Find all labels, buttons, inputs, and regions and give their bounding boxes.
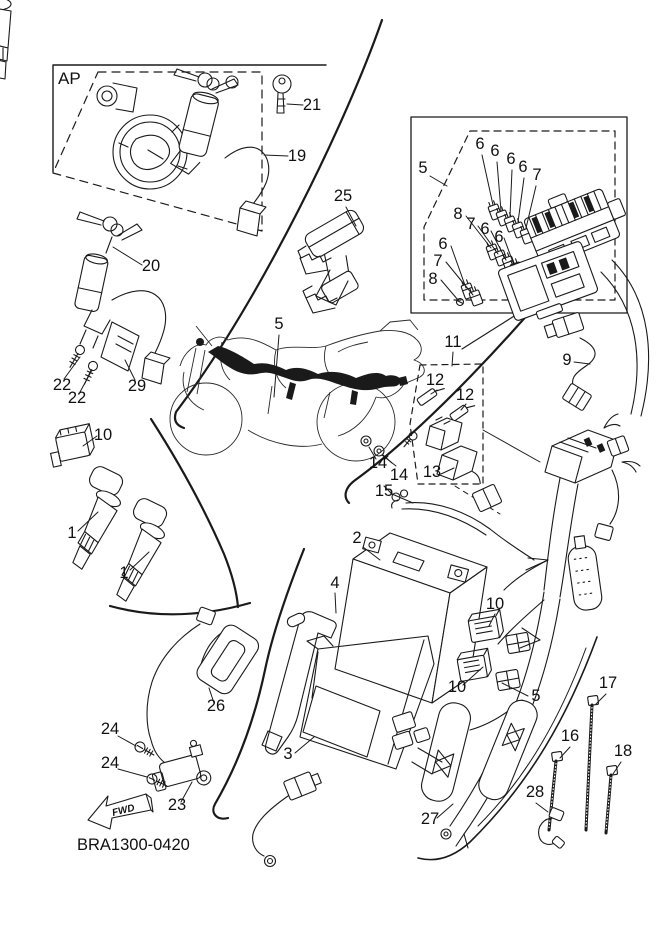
callout-8b: 8: [428, 270, 437, 288]
callout-23: 23: [168, 796, 186, 814]
electrical-parts-diagram: FWD: [0, 0, 661, 935]
callout-22b: 22: [68, 389, 86, 407]
callout-5-fuse: 5: [418, 159, 427, 177]
seat-lock-cylinder: [97, 86, 117, 106]
callout-12a: 12: [426, 371, 444, 389]
bracket-plate-29: [101, 322, 139, 371]
key-21: [273, 75, 291, 113]
screw-24a: [133, 740, 156, 759]
callout-4: 4: [330, 574, 339, 592]
relay-13-body: [437, 446, 477, 480]
callout-18: 18: [614, 742, 632, 760]
relay-assembly-25: [294, 208, 389, 313]
callout-6b: 6: [490, 142, 499, 160]
ap-region-tag: AP: [58, 69, 81, 88]
callout-1a: 1: [67, 524, 76, 542]
callout-24b: 24: [101, 754, 119, 772]
callout-21: 21: [303, 96, 321, 114]
callout-6e: 6: [480, 220, 489, 238]
cable-ties: [539, 695, 618, 849]
screw-22a: [66, 344, 86, 370]
main-switch-20-group: [66, 212, 170, 386]
fuse-pointer-line: [462, 313, 519, 349]
callout-7c: 7: [433, 252, 442, 270]
callout-7b: 7: [466, 215, 475, 233]
callout-14a: 14: [369, 454, 387, 472]
parts-diagram-page: FWD: [0, 0, 661, 935]
switch-20-connector: [142, 352, 170, 384]
callout-24a: 24: [101, 720, 119, 738]
section-frames: [53, 20, 627, 860]
callout-10b: 10: [486, 595, 504, 613]
callout-20: 20: [142, 257, 160, 275]
ap-dashed-box: [53, 72, 262, 231]
motorcycle-silhouette: [170, 320, 424, 461]
relay-11-body: [426, 418, 462, 450]
callout-13: 13: [423, 463, 441, 481]
divider-arc-bottom-left: [110, 603, 250, 614]
callout-10c: 10: [448, 678, 466, 696]
callout-17: 17: [599, 674, 617, 692]
callout-10a: 10: [94, 426, 112, 444]
fwd-arrow: FWD: [88, 794, 153, 829]
callout-12b: 12: [456, 386, 474, 404]
callout-8a: 8: [453, 205, 462, 223]
fuse-7c: [468, 286, 484, 306]
fuel-cap: [113, 115, 187, 189]
fuse-box-lower: [497, 241, 600, 327]
front-wheel: [170, 383, 242, 455]
relay-unit-10a: [46, 424, 96, 467]
callout-25: 25: [334, 187, 352, 205]
main-switch-19: [169, 89, 269, 236]
clamp-28: [539, 807, 566, 849]
callout-6c: 6: [506, 150, 515, 168]
callout-6d: 6: [518, 158, 527, 176]
callout-19: 19: [288, 147, 306, 165]
callout-6f: 6: [494, 228, 503, 246]
callout-3: 3: [283, 745, 292, 763]
callout-6g: 6: [438, 235, 447, 253]
callout-11: 11: [444, 333, 461, 351]
harness-on-bike: [208, 346, 400, 390]
callout-27: 27: [421, 810, 439, 828]
battery-band-4: [262, 612, 336, 754]
battery-wire-bottom: [253, 769, 324, 867]
switch-cable: [147, 624, 200, 763]
callout-2: 2: [352, 529, 361, 547]
cable-tie-18: [606, 765, 618, 833]
callout-29: 29: [128, 377, 146, 395]
callout-26: 26: [207, 697, 225, 715]
callout-16: 16: [561, 727, 579, 745]
relay-group-pointer: [483, 430, 540, 462]
callout-28: 28: [526, 783, 544, 801]
callout-1b: 1: [119, 564, 128, 582]
fusebox-wires: [601, 260, 649, 416]
callout-7a: 7: [532, 166, 541, 184]
callout-5-right: 5: [531, 687, 540, 705]
switch-23: [146, 738, 212, 797]
diagram-code: BRA1300-0420: [77, 836, 190, 854]
callout-5-harness: 5: [274, 315, 283, 333]
starter-relay-cylinder: [565, 534, 603, 611]
callout-6a: 6: [475, 135, 484, 153]
callout-15: 15: [375, 482, 393, 500]
cable-tie-17: [586, 695, 599, 830]
callout-9: 9: [562, 351, 571, 369]
screw-22b: [80, 360, 99, 386]
